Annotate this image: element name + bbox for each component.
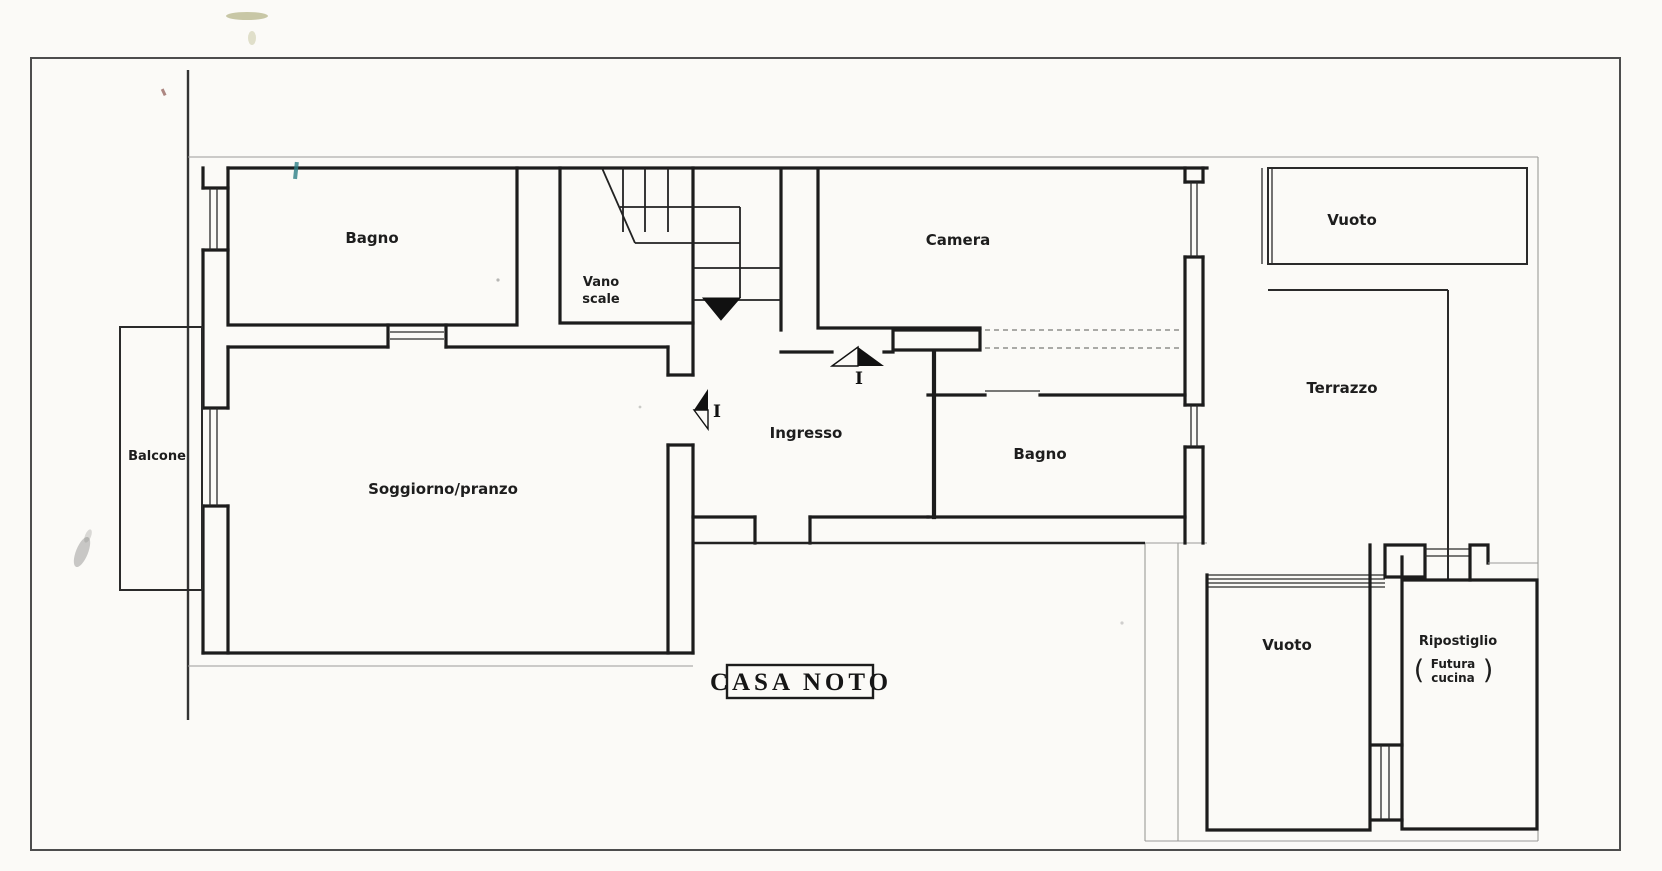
floor-plan-canvas: I I Bagno Vano scale Camera Ingresso Sog… xyxy=(0,0,1662,871)
plan-title: CASA NOTO xyxy=(710,669,892,696)
room-label-soggiorno: Soggiorno/pranzo xyxy=(368,480,518,498)
scan-dot xyxy=(1120,621,1123,624)
room-label-ingresso: Ingresso xyxy=(770,424,843,442)
floor-plan-page: I I Bagno Vano scale Camera Ingresso Sog… xyxy=(0,0,1662,871)
door-marker-label: I xyxy=(713,402,721,422)
door-swing-icon xyxy=(694,389,708,410)
room-label-terrazzo: Terrazzo xyxy=(1306,379,1377,397)
stairs-down-arrow-icon xyxy=(703,298,740,320)
scan-smudge xyxy=(248,31,256,45)
scan-dot xyxy=(496,278,499,281)
room-label-vano-scale-2: scale xyxy=(582,292,620,307)
door-swing-icon xyxy=(694,410,708,429)
room-label-ripostiglio: Ripostiglio xyxy=(1419,634,1497,649)
room-label-futura-1: Futura xyxy=(1431,657,1475,671)
door-swing-icon xyxy=(858,347,884,366)
room-label-balcone: Balcone xyxy=(128,449,186,464)
scan-mark-teal xyxy=(293,162,299,179)
title-block: CASA NOTO xyxy=(710,665,892,698)
door-swing-icon xyxy=(832,347,858,366)
drawing-border xyxy=(31,58,1620,850)
room-label-futura-2: cucina xyxy=(1431,671,1475,685)
paren-close: ) xyxy=(1483,655,1494,686)
paren-open: ( xyxy=(1414,655,1425,686)
door-swing-west: I xyxy=(694,389,721,429)
walls xyxy=(203,168,1538,830)
dashed-beam-lines xyxy=(985,330,1180,348)
scan-smudge-gray xyxy=(70,535,93,569)
faint-ledge-lines xyxy=(188,157,1538,841)
room-label-vuoto-top: Vuoto xyxy=(1327,211,1377,229)
room-label-vuoto-bottom: Vuoto xyxy=(1262,636,1312,654)
room-label-bagno-top: Bagno xyxy=(345,229,398,247)
door-swing-entrance: I xyxy=(832,347,884,389)
room-label-vano-scale-1: Vano xyxy=(583,275,619,290)
scan-smudge xyxy=(226,12,268,20)
scan-dot xyxy=(639,406,642,409)
room-label-bagno-right: Bagno xyxy=(1013,445,1066,463)
scan-speck xyxy=(161,88,167,96)
door-marker-label: I xyxy=(855,369,863,389)
room-label-camera: Camera xyxy=(926,231,990,249)
